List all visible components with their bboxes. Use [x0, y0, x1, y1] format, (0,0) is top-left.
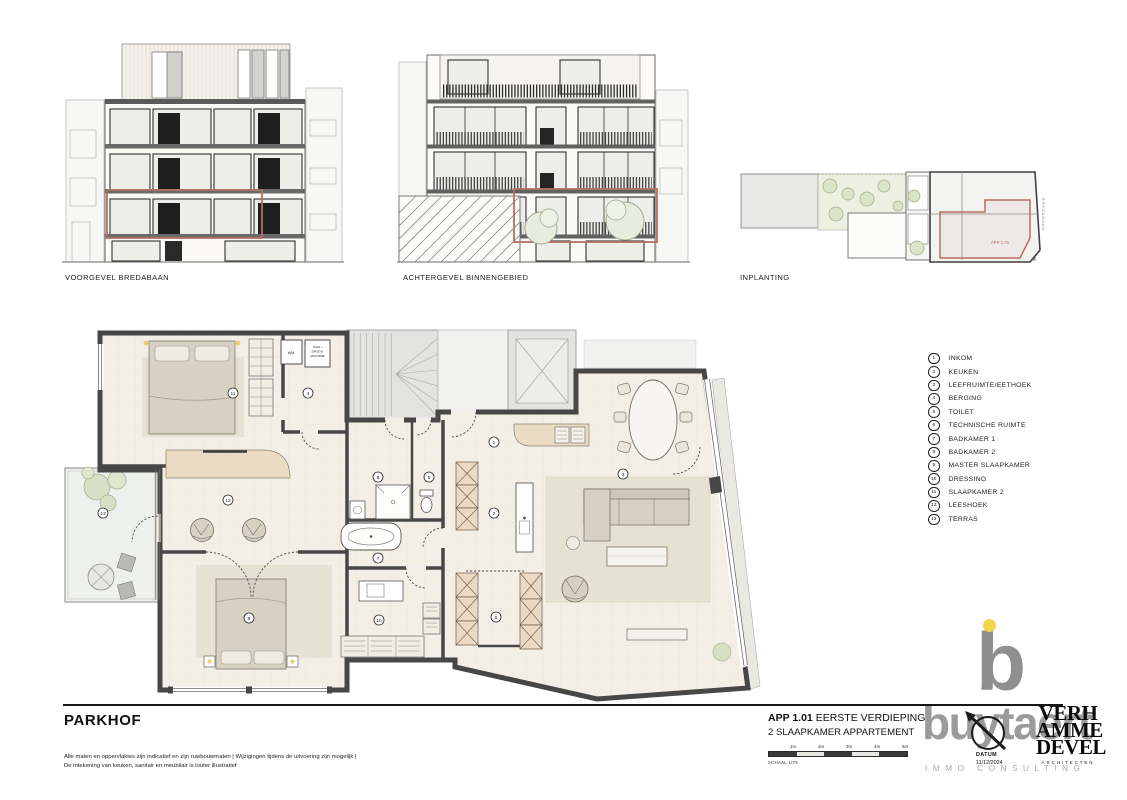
- legend-item: 12LEESHOEK: [928, 499, 1031, 512]
- svg-text:11: 11: [231, 391, 236, 397]
- terrace: [65, 467, 158, 602]
- berging-appliances: WM. WAS / DROOG MACHINE: [281, 340, 330, 367]
- wm-label: WM.: [288, 351, 296, 355]
- svg-text:2: 2: [493, 511, 496, 517]
- inplanting-caption: INPLANTING: [740, 273, 790, 282]
- legend-label: BADKAMER 2: [949, 449, 996, 456]
- svg-text:8: 8: [377, 475, 380, 481]
- svg-text:6: 6: [495, 615, 498, 621]
- curved-partition: [166, 450, 290, 478]
- legend-item: 5TOILET: [928, 406, 1031, 419]
- logo-yellow-dot: [983, 619, 996, 632]
- legend-label: LEEFRUIMTE/EETHOEK: [949, 382, 1032, 389]
- unit-code: APP 1.01: [768, 712, 813, 724]
- legend-label: INKOM: [949, 355, 973, 362]
- legend-label: MASTER SLAAPKAMER: [949, 462, 1030, 469]
- voorgevel-caption: VOORGEVEL BREDABAAN: [65, 273, 169, 282]
- buytaert-logo-icon: b: [976, 616, 1040, 712]
- architect-logo-subtext: ARCHITECTEN: [1036, 760, 1100, 765]
- scale-bar: 1m2m3m4m5m SCHAAL 1/75: [768, 744, 908, 765]
- svg-text:7: 7: [377, 556, 380, 562]
- legend-number-badge: 2: [928, 366, 940, 378]
- svg-text:5: 5: [428, 475, 431, 481]
- svg-text:1: 1: [493, 440, 496, 446]
- legend-number-badge: 8: [928, 447, 940, 459]
- disclaimer-text: Alle maten en oppervlaktes zijn indicati…: [64, 753, 357, 772]
- legend-number-badge: 3: [928, 380, 940, 392]
- legend-item: 2KEUKEN: [928, 365, 1031, 378]
- legend-item: 7BADKAMER 1: [928, 432, 1031, 445]
- site-unit-label: APP 1.01: [991, 240, 1010, 245]
- legend-item: 4BERGING: [928, 392, 1031, 405]
- legend-item: 11SLAAPKAMER 2: [928, 486, 1031, 499]
- floorplan-drawing: WM. WAS / DROOG MACHINE: [55, 315, 775, 710]
- unit-type: 2 SLAAPKAMER APPARTEMENT: [768, 727, 914, 738]
- svg-text:MACHINE: MACHINE: [310, 354, 324, 358]
- legend-label: LEESHOEK: [949, 502, 988, 509]
- unit-floor: EERSTE VERDIEPING: [816, 712, 926, 724]
- legend-label: TOILET: [949, 409, 974, 416]
- legend-label: KEUKEN: [949, 369, 979, 376]
- legend-label: BERGING: [949, 395, 982, 402]
- legend-item: 3LEEFRUIMTE/EETHOEK: [928, 379, 1031, 392]
- legend-item: 13TERRAS: [928, 513, 1031, 526]
- achtergevel-caption: ACHTERGEVEL BINNENGEBIED: [403, 273, 528, 282]
- date-block: DATUM 11/12/2024: [976, 751, 1003, 767]
- legend-number-badge: 9: [928, 460, 940, 472]
- architect-logo: VERH AMME DEVEL: [1036, 705, 1100, 755]
- legend-number-badge: 6: [928, 420, 940, 432]
- legend-number-badge: 4: [928, 393, 940, 405]
- svg-text:3: 3: [622, 472, 625, 478]
- footer-rule: [63, 704, 1063, 706]
- legend-item: 10DRESSING: [928, 473, 1031, 486]
- scale-label: SCHAAL 1/75: [768, 760, 908, 765]
- plan-sheet: VOORGEVEL BREDABAAN ACHTERGEVEL BINNEN: [0, 0, 1127, 800]
- svg-text:4: 4: [307, 391, 310, 397]
- dining-furniture: [614, 380, 692, 460]
- svg-text:DROOG: DROOG: [312, 350, 324, 354]
- legend-number-badge: 1: [928, 353, 940, 365]
- voorgevel-drawing: [60, 30, 350, 270]
- inplanting-drawing: APP 1.01 BREDABAAN: [728, 162, 1046, 270]
- unit-title: APP 1.01 EERSTE VERDIEPING: [768, 712, 925, 724]
- svg-text:12: 12: [225, 498, 231, 504]
- legend-label: TERRAS: [949, 516, 978, 523]
- room-legend: 1INKOM2KEUKEN3LEEFRUIMTE/EETHOEK4BERGING…: [928, 352, 1031, 526]
- svg-text:9: 9: [248, 616, 251, 622]
- project-title: PARKHOF: [64, 712, 141, 729]
- legend-item: 1INKOM: [928, 352, 1031, 365]
- legend-item: 8BADKAMER 2: [928, 446, 1031, 459]
- legend-label: DRESSING: [949, 476, 987, 483]
- svg-text:WAS /: WAS /: [313, 345, 322, 349]
- legend-number-badge: 13: [928, 514, 940, 526]
- legend-item: 6TECHNISCHE RUIMTE: [928, 419, 1031, 432]
- legend-number-badge: 7: [928, 433, 940, 445]
- legend-number-badge: 12: [928, 500, 940, 512]
- legend-label: BADKAMER 1: [949, 436, 996, 443]
- legend-number-badge: 10: [928, 473, 940, 485]
- legend-number-badge: 5: [928, 406, 940, 418]
- legend-item: 9MASTER SLAAPKAMER: [928, 459, 1031, 472]
- svg-text:10: 10: [376, 618, 382, 624]
- datum-label: DATUM: [976, 752, 997, 758]
- legend-label: SLAAPKAMER 2: [949, 489, 1004, 496]
- achtergevel-drawing: [393, 30, 693, 270]
- legend-label: TECHNISCHE RUIMTE: [949, 422, 1026, 429]
- datum-value: 11/12/2024: [976, 760, 1003, 766]
- site-street-label: BREDABAAN: [1041, 198, 1046, 231]
- svg-text:13: 13: [100, 511, 106, 517]
- legend-number-badge: 11: [928, 487, 940, 499]
